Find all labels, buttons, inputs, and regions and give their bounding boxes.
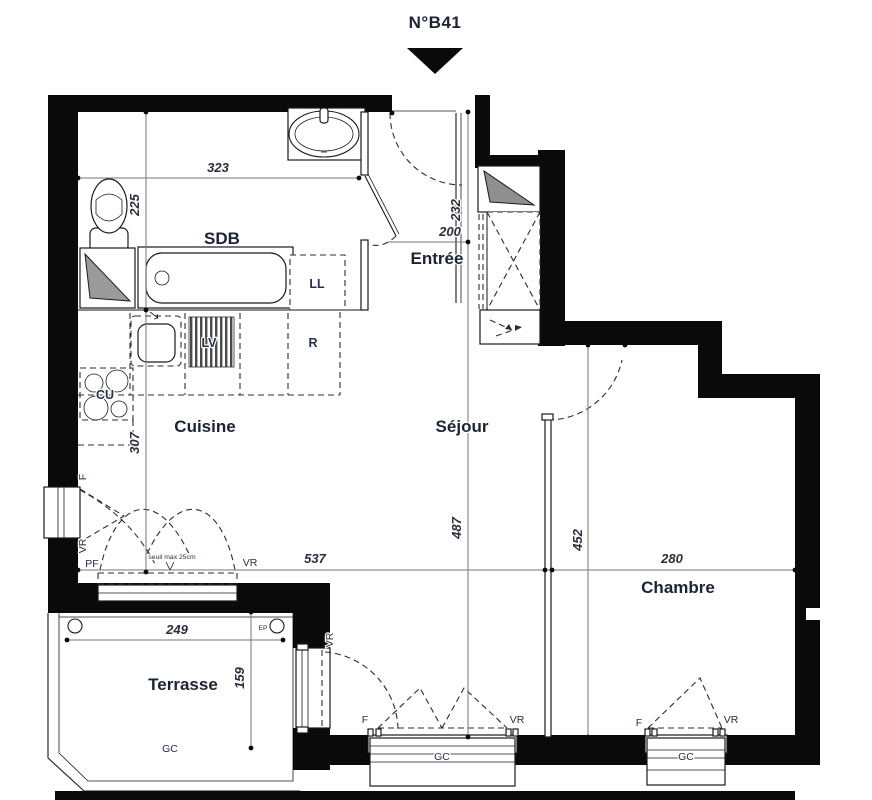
hob-label: CU xyxy=(96,388,114,402)
shutter-label-kitchen: VR xyxy=(77,538,89,553)
plan-title: N°B41 xyxy=(407,13,463,74)
dim-sdb-width: 323 xyxy=(207,160,229,175)
vanity-sink xyxy=(288,108,365,160)
entry-closet xyxy=(479,212,540,310)
dim-bedroom-width: 280 xyxy=(660,551,683,566)
duct-shaft-entry xyxy=(478,166,540,212)
shutter-label-pf: VR xyxy=(243,557,258,569)
rain-pipe-icon xyxy=(270,619,284,633)
shutter-label-bedroom: VR xyxy=(724,714,739,726)
dim-entry-width: 200 xyxy=(438,224,461,239)
room-label-sejour: Séjour xyxy=(436,417,489,436)
north-pointer-icon xyxy=(407,48,463,74)
kitchen-side-window xyxy=(44,487,80,538)
duct-shaft-sdb xyxy=(80,248,135,308)
dim-sdb-depth: 225 xyxy=(127,193,142,216)
rain-pipe-label: EP xyxy=(258,625,268,632)
terrace-french-door-frame xyxy=(98,585,237,601)
room-label-terrasse: Terrasse xyxy=(148,675,218,694)
living-window-swing xyxy=(378,688,507,728)
window-label-kitchen: F xyxy=(77,474,89,480)
dim-bedroom-depth: 452 xyxy=(570,528,585,551)
bathtub-icon xyxy=(138,247,293,308)
walls xyxy=(48,95,822,800)
french-door-label: PF xyxy=(85,558,98,570)
guardrail-label-living: GC xyxy=(434,751,450,763)
kitchen-window-swing xyxy=(80,489,156,566)
window-label-bedroom: F xyxy=(636,717,642,729)
dim-terrace-depth: 159 xyxy=(232,666,247,688)
room-label-cuisine: Cuisine xyxy=(174,417,235,436)
room-label-chambre: Chambre xyxy=(641,578,715,597)
living-terrace-door-frame xyxy=(296,644,330,733)
shutter-label-living-door: VR xyxy=(324,632,336,647)
sdb-door xyxy=(361,112,399,310)
threshold-note: seuil max 25cm xyxy=(148,554,196,561)
room-label-sdb: SDB xyxy=(204,229,240,248)
guardrail-label-terrace: GC xyxy=(162,743,178,755)
unit-number-label: N°B41 xyxy=(409,13,462,32)
entry-cabinet xyxy=(480,310,540,344)
dim-terrace-width: 249 xyxy=(165,622,188,637)
terrace-post-icon xyxy=(68,619,82,633)
window-label-living: F xyxy=(362,714,368,726)
living-terrace-door-swing xyxy=(322,650,398,731)
shutter-label-living: VR xyxy=(510,714,525,726)
washing-machine-label: LL xyxy=(309,277,325,291)
dishwasher-label: LV xyxy=(201,336,217,350)
dim-entry-depth: 232 xyxy=(448,198,463,221)
room-label-entree: Entrée xyxy=(411,249,464,268)
toilet-icon xyxy=(90,179,128,252)
dim-kitchen-depth: 307 xyxy=(127,431,142,453)
bedroom-window-swing xyxy=(648,678,722,728)
floor-plan: N°B41 xyxy=(0,0,872,800)
dim-living-depth: 487 xyxy=(449,516,464,539)
fridge-label: R xyxy=(308,336,317,350)
kitchen-sink xyxy=(131,312,181,366)
dim-living-width: 537 xyxy=(304,551,326,566)
guardrail-label-bedroom: GC xyxy=(678,751,694,763)
terrace-french-door-swing xyxy=(98,509,237,584)
right-wall-notch xyxy=(806,608,822,620)
